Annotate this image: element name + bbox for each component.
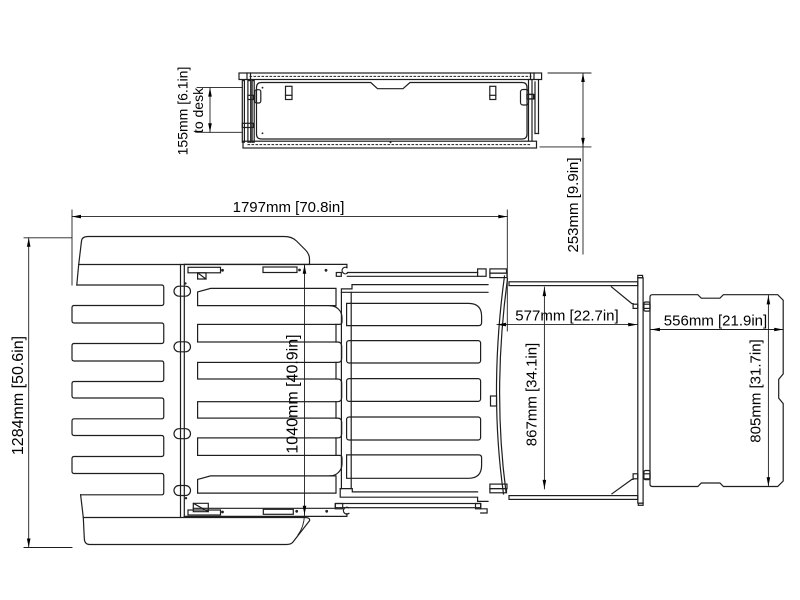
- svg-text:577mm [22.7in]: 577mm [22.7in]: [515, 308, 618, 325]
- svg-text:1284mm [50.6in]: 1284mm [50.6in]: [10, 336, 27, 455]
- svg-text:to desk: to desk: [190, 87, 206, 133]
- svg-text:253mm [9.9in]: 253mm [9.9in]: [565, 157, 582, 252]
- svg-text:155mm [6.1in]: 155mm [6.1in]: [175, 67, 191, 156]
- svg-text:1040mm [40.9in]: 1040mm [40.9in]: [285, 334, 302, 453]
- svg-text:805mm [31.7in]: 805mm [31.7in]: [748, 339, 765, 442]
- svg-text:1797mm [70.8in]: 1797mm [70.8in]: [233, 199, 345, 216]
- svg-text:867mm [34.1in]: 867mm [34.1in]: [524, 343, 541, 446]
- svg-text:556mm [21.9in]: 556mm [21.9in]: [664, 313, 767, 330]
